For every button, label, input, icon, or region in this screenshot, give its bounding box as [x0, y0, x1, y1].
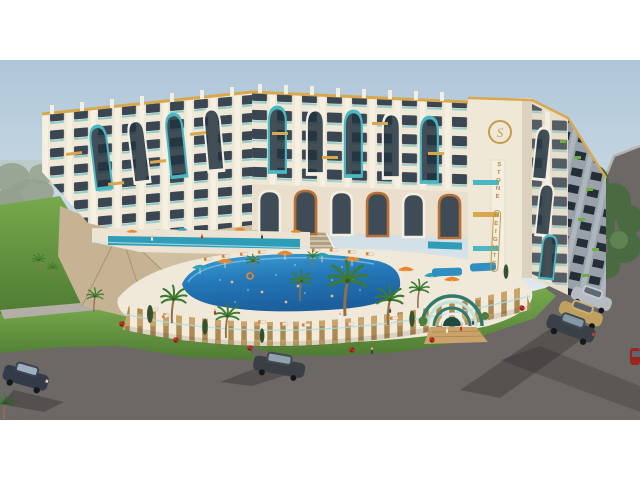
duplex-arch [331, 192, 352, 235]
car-red-partial [630, 348, 640, 365]
logo-monogram: S [497, 125, 504, 140]
duplex-arch [403, 194, 424, 237]
duplex-arch-copper [367, 193, 388, 236]
facade-arch [345, 112, 362, 177]
upper-pool-right [428, 241, 462, 249]
person [201, 233, 203, 238]
center-block [252, 84, 468, 238]
duplex-arch-copper [295, 191, 316, 234]
sign-line-heights: HEIGHTS [490, 210, 501, 272]
cypress-tree [504, 264, 509, 278]
sign-line-stone: STONE [494, 162, 502, 202]
cypress-tree [202, 319, 207, 335]
ground-floor-wall [252, 184, 468, 238]
architectural-render-image: S [0, 0, 640, 480]
person [472, 319, 474, 325]
private-plunge-pool [432, 267, 462, 276]
duplex-arch [259, 191, 280, 234]
cypress-tree [260, 328, 265, 342]
cypress-tree [409, 311, 414, 327]
duplex-arch-copper [439, 195, 460, 238]
letterbox-top [0, 0, 640, 60]
person [460, 325, 462, 331]
cypress-tree [147, 305, 153, 323]
facade-arch [269, 108, 286, 173]
person [446, 327, 448, 333]
letterbox-bottom [0, 420, 640, 480]
person [261, 233, 263, 238]
pedestrian [371, 347, 373, 353]
facade-arch [307, 110, 324, 175]
person [151, 235, 153, 240]
facade-arch [421, 118, 438, 183]
render-photo: S [0, 60, 640, 420]
